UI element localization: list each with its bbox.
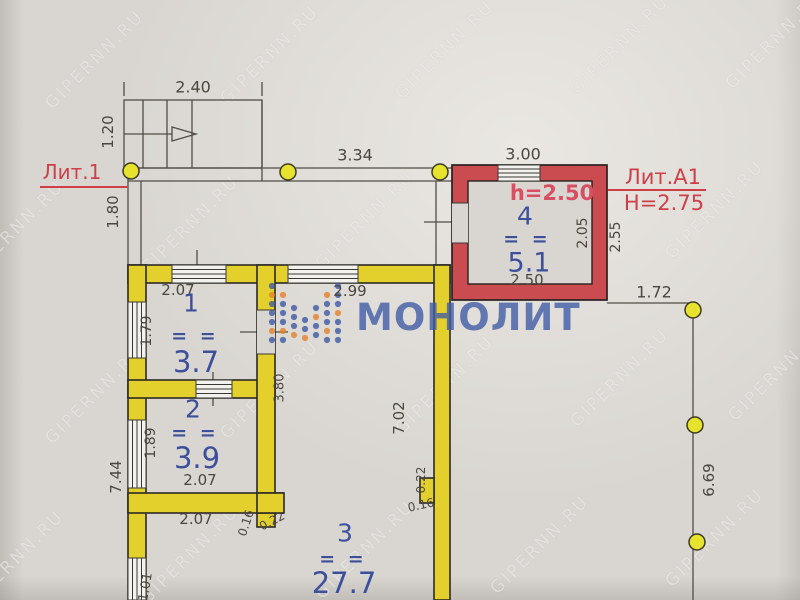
dimension-label: 7.02 (390, 401, 408, 434)
dimension-label: 1.72 (636, 283, 672, 302)
dimension-label: 0.22 (414, 467, 428, 494)
room-2-area: 3.9 (174, 441, 220, 475)
room-4-area: 5.1 (508, 248, 551, 279)
room-3-number: 3 (337, 519, 353, 548)
room-1-equals: = = (171, 325, 218, 347)
monolit-logo-text: МОНОЛИТ (356, 296, 581, 339)
dimension-label: 0.16 (235, 508, 257, 538)
dimension-label: 6.69 (700, 463, 718, 496)
room-4-number: 4 (517, 202, 533, 231)
room-1-area: 3.7 (173, 345, 219, 379)
floorplan-photo: GIPERNN.RUGIPERNN.RUGIPERNN.RUGIPERNN.RU… (0, 0, 800, 600)
room-1-number: 1 (183, 289, 199, 318)
dimension-label: 3.00 (505, 145, 541, 164)
room-2-number: 2 (185, 395, 201, 424)
dimension-label: 0.16 (406, 495, 435, 514)
dimension-label: 1.20 (99, 115, 117, 148)
dimension-label: 7.44 (107, 460, 125, 493)
dimension-label: 2.55 (608, 221, 624, 252)
dimension-label: 3.80 (273, 374, 288, 403)
dimension-label: 2.40 (175, 78, 211, 97)
dimension-label: 1.01 (136, 571, 156, 600)
dimension-label: 0.22 (257, 509, 287, 534)
dimension-label: 3.34 (337, 146, 373, 165)
dimension-label: 2.05 (575, 217, 591, 248)
dimension-label: 2.07 (179, 510, 212, 528)
dimension-label: 1.89 (143, 427, 159, 458)
litA1-label: Лит.А1 (625, 165, 701, 189)
room-3-area: 27.7 (312, 566, 377, 600)
lit1-label: Лит.1 (43, 160, 102, 184)
building-height-label: H=2.75 (624, 191, 704, 215)
dimension-label: 1.80 (104, 195, 122, 228)
dimension-label: 1.79 (139, 315, 155, 346)
